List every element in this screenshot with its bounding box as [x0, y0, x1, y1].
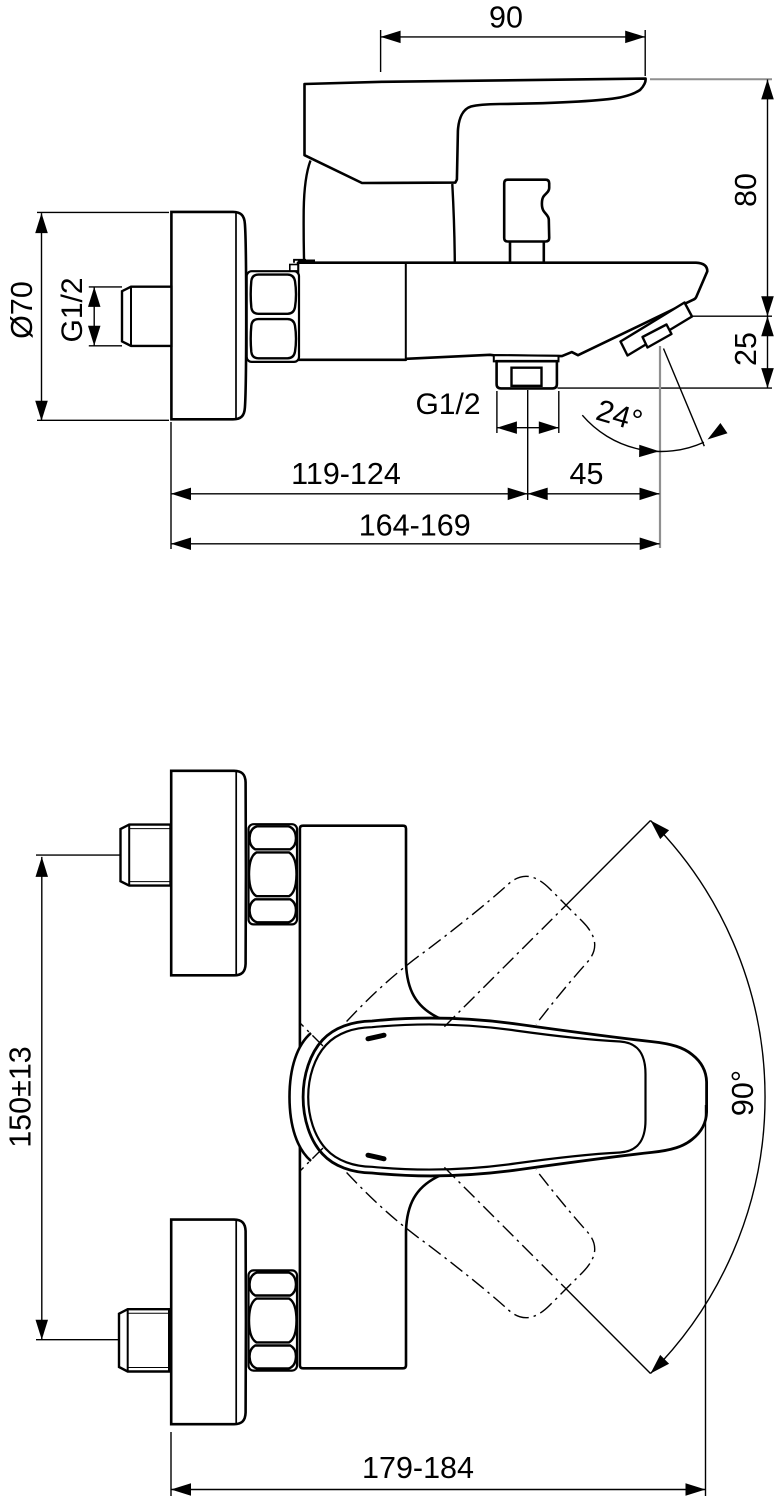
svg-text:90: 90 [489, 1, 523, 35]
svg-text:119-124: 119-124 [291, 457, 401, 491]
svg-text:G1/2: G1/2 [415, 388, 480, 421]
svg-text:80: 80 [729, 173, 763, 207]
svg-text:179-184: 179-184 [362, 1451, 474, 1485]
svg-text:25: 25 [729, 332, 763, 366]
svg-text:Ø70: Ø70 [5, 281, 39, 339]
svg-text:164-169: 164-169 [359, 509, 471, 543]
svg-text:G1/2: G1/2 [56, 277, 89, 342]
svg-text:150±13: 150±13 [4, 1046, 38, 1148]
svg-text:90°: 90° [726, 1070, 760, 1116]
svg-text:45: 45 [570, 457, 604, 491]
